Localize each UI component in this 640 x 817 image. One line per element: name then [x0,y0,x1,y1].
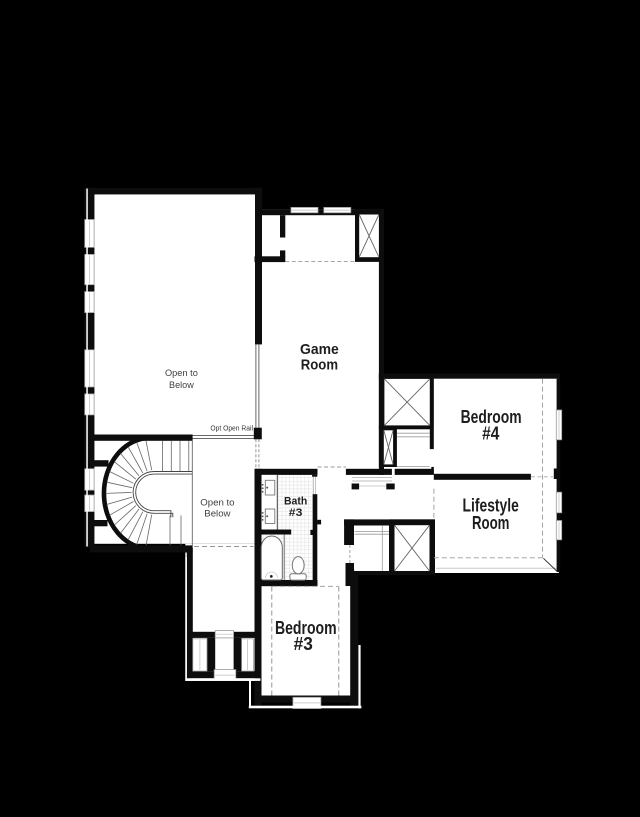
svg-text:#3: #3 [289,507,303,519]
svg-text:Room: Room [301,357,338,374]
svg-text:#3: #3 [294,633,313,654]
svg-text:Below: Below [169,380,194,391]
svg-text:Room: Room [472,513,510,533]
svg-text:Opt Open Rail: Opt Open Rail [210,424,253,433]
svg-text:Below: Below [204,509,231,519]
svg-text:Open to: Open to [200,497,234,507]
svg-text:Open to: Open to [165,368,198,379]
svg-text:#4: #4 [482,424,499,444]
svg-text:Bath: Bath [284,496,307,508]
